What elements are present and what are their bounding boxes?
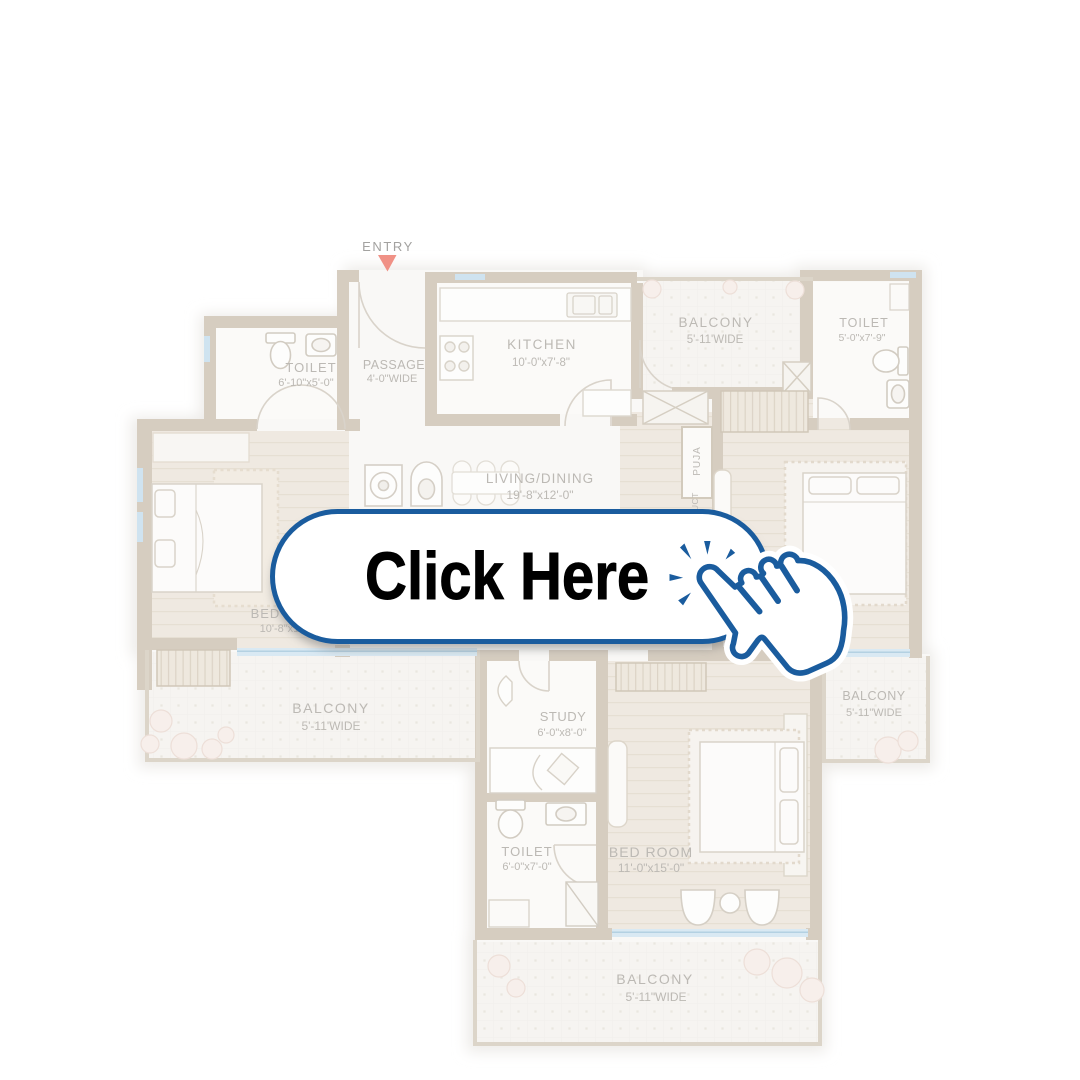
svg-text:6'-0"x8'-0": 6'-0"x8'-0" bbox=[537, 727, 586, 739]
svg-text:BALCONY: BALCONY bbox=[292, 700, 369, 716]
svg-text:TOILET: TOILET bbox=[285, 360, 336, 375]
svg-text:10'-0"x7'-8": 10'-0"x7'-8" bbox=[512, 357, 570, 369]
svg-text:5'-11"WIDE: 5'-11"WIDE bbox=[625, 990, 686, 1004]
svg-text:KITCHEN: KITCHEN bbox=[507, 337, 577, 352]
svg-text:5'-11'WIDE: 5'-11'WIDE bbox=[301, 719, 360, 733]
svg-text:LIVING/DINING: LIVING/DINING bbox=[486, 471, 594, 486]
svg-text:BALCONY: BALCONY bbox=[678, 315, 753, 330]
svg-text:TOILET: TOILET bbox=[839, 316, 889, 330]
svg-text:5'-0"x7'-9": 5'-0"x7'-9" bbox=[838, 332, 885, 344]
svg-text:PUJA: PUJA bbox=[692, 446, 703, 476]
svg-text:STUDY: STUDY bbox=[540, 709, 587, 724]
svg-text:ENTRY: ENTRY bbox=[362, 239, 414, 254]
svg-text:11'-0"x15'-0": 11'-0"x15'-0" bbox=[618, 861, 684, 875]
svg-text:6'-10"x5'-0": 6'-10"x5'-0" bbox=[278, 377, 334, 389]
svg-text:4'-0"WIDE: 4'-0"WIDE bbox=[367, 373, 418, 385]
svg-text:TOILET: TOILET bbox=[501, 844, 552, 859]
svg-text:PASSAGE: PASSAGE bbox=[363, 358, 425, 372]
svg-text:BED ROOM: BED ROOM bbox=[609, 844, 693, 860]
svg-text:5'-11'WIDE: 5'-11'WIDE bbox=[687, 334, 744, 346]
svg-text:19'-8"x12'-0": 19'-8"x12'-0" bbox=[506, 488, 573, 502]
svg-text:BALCONY: BALCONY bbox=[616, 971, 693, 987]
svg-text:6'-0"x7'-0": 6'-0"x7'-0" bbox=[502, 861, 551, 873]
